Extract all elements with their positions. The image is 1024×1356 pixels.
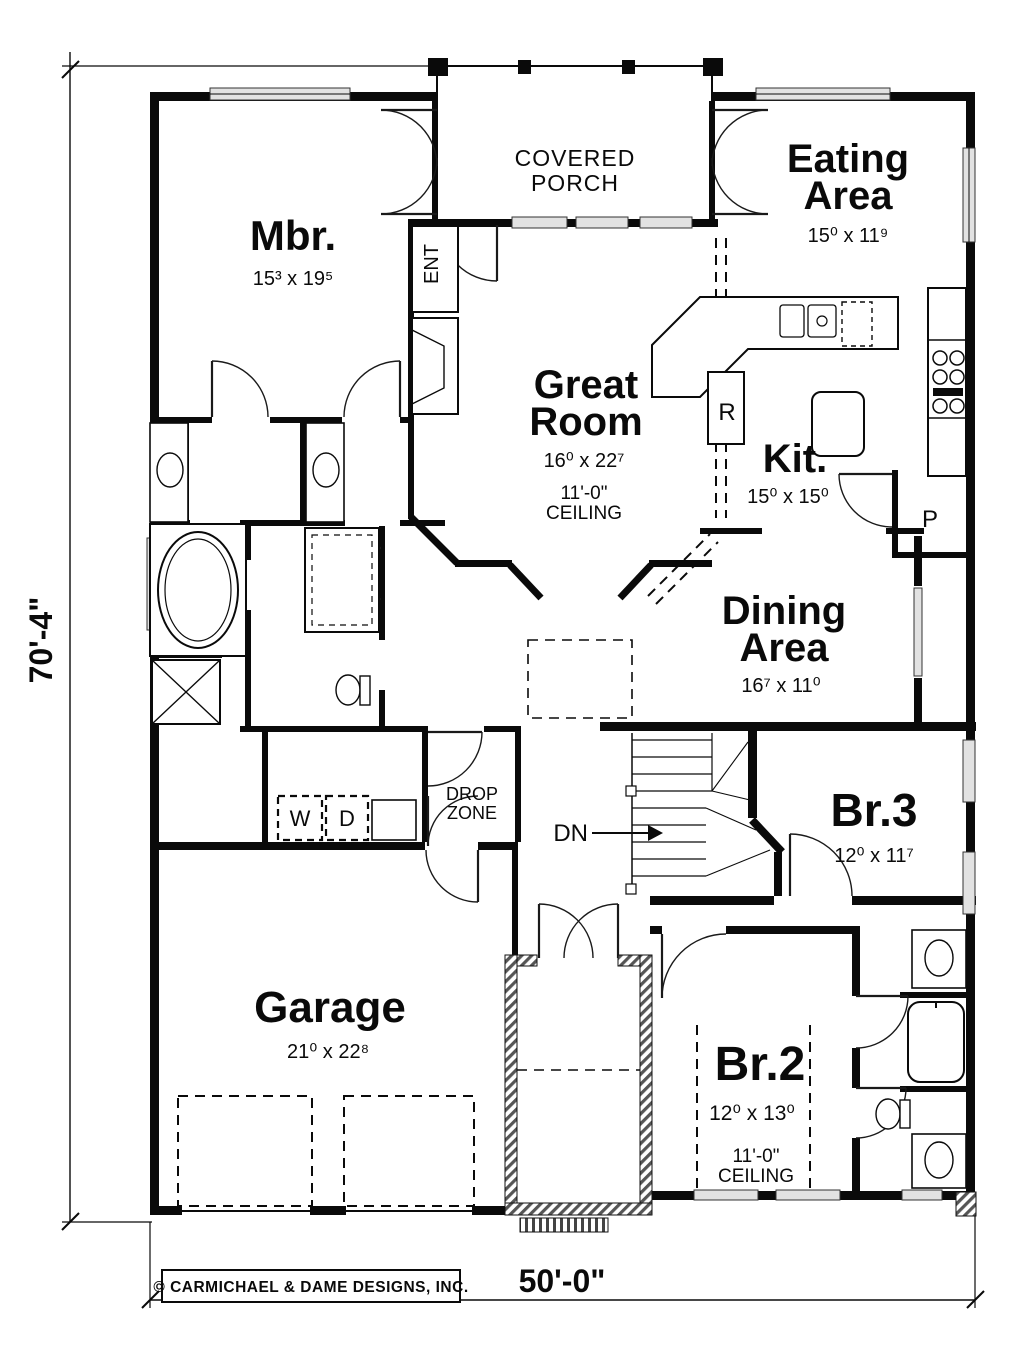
hall-bath-fixtures [876,930,966,1188]
mbr-label: Mbr. [250,212,336,259]
entry-step [520,1218,608,1232]
floor-plan-page: { "plan": { "rooms": { "covered_porch": … [0,0,1024,1356]
br2-ceiling: 11'-0" [733,1146,780,1167]
eating-area-label: Area [804,174,894,218]
washer-label: W [290,806,311,831]
sink [157,453,183,487]
copyright-text: © CARMICHAEL & DAME DESIGNS, INC. [153,1279,468,1296]
kitchen-size: 15⁰ x 15⁰ [747,486,829,508]
dn-arrow [648,825,663,841]
br3-label: Br.3 [831,784,918,836]
toilet [336,675,360,705]
garage-size: 21⁰ x 22⁸ [287,1041,369,1063]
corner-pilaster [956,1192,976,1216]
br3-size: 12⁰ x 11⁷ [834,845,913,867]
toilet [876,1099,900,1129]
great-room-ceiling: CEILING [546,503,622,524]
bathtub [908,1002,964,1082]
covered-porch-label: COVERED [515,145,636,171]
title-block: © CARMICHAEL & DAME DESIGNS, INC. [153,1270,468,1302]
width-dimension: 50'-0" [519,1263,606,1299]
master-bath-fixtures [150,423,379,724]
sink [925,940,953,976]
sink [925,1142,953,1178]
down-label: DN [553,820,588,847]
dryer-label: D [339,806,355,831]
mbr-size: 15³ x 19⁵ [253,268,334,290]
br2-label: Br.2 [715,1038,806,1091]
great-room-size: 16⁰ x 22⁷ [544,450,625,472]
laundry-counter [372,800,416,840]
great-room-ceiling: 11'-0" [561,483,608,504]
dining-area-label: Area [740,626,830,670]
exterior-walls [150,92,975,1215]
dining-area-size: 16⁷ x 11⁰ [741,675,820,697]
range-label: R [718,399,735,426]
room-labels: COVERED PORCH Eating Area 15⁰ x 11⁹ Mbr.… [250,137,918,1187]
great-room-label: Room [529,400,642,444]
floor-plan-canvas: COVERED PORCH Eating Area 15⁰ x 11⁹ Mbr.… [0,0,1024,1356]
kitchen-counter [652,297,898,397]
covered-porch-label: PORCH [531,170,619,196]
master-tub [158,532,238,648]
pantry-label: P [922,506,938,533]
height-dimension: 70'-4" [23,597,59,684]
eating-area-size: 15⁰ x 11⁹ [808,225,889,247]
drop-zone-label: DROP [446,784,498,804]
kitchen-label: Kit. [763,437,827,481]
dimension-labels: 70'-4" 50'-0" [23,597,605,1299]
walk-in-closet [305,528,379,632]
art-niche [412,318,458,414]
drop-zone-label: ZONE [447,803,497,823]
kitchen-sink [780,305,804,337]
br2-size: 12⁰ x 13⁰ [709,1102,795,1125]
staircase [592,733,770,894]
oven-cabinet [928,288,966,476]
sink [313,453,339,487]
garage-label: Garage [254,983,406,1032]
ent-label: ENT [421,244,443,284]
br2-ceiling: CEILING [718,1166,794,1187]
